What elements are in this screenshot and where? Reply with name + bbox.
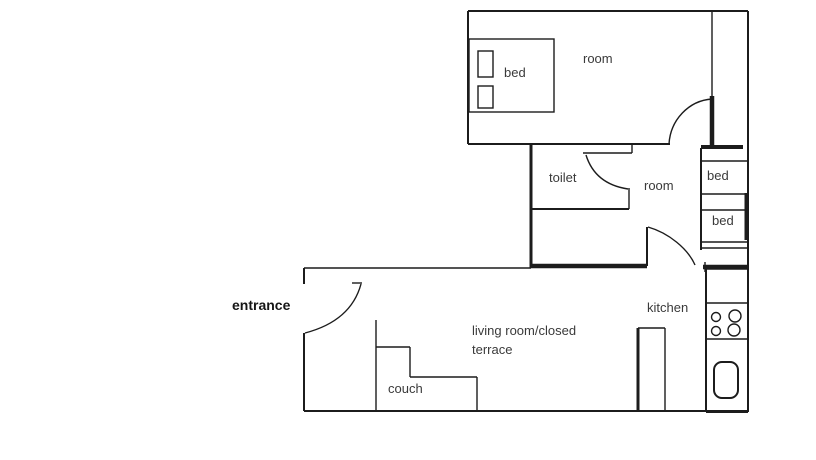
pillow-icon bbox=[478, 51, 493, 77]
top-room-door bbox=[669, 96, 712, 146]
stove-burner-icon bbox=[712, 327, 721, 336]
label-entrance: entrance bbox=[232, 298, 290, 313]
couch-outline bbox=[376, 320, 477, 410]
label-top-room: room bbox=[583, 51, 613, 66]
corridor-door bbox=[647, 227, 695, 266]
kitchen-counter bbox=[706, 269, 748, 412]
door-arc bbox=[669, 99, 712, 144]
stove-burner-icon bbox=[712, 313, 721, 322]
bed-closet bbox=[701, 145, 747, 250]
kitchen-island bbox=[638, 328, 665, 410]
sink-icon bbox=[714, 362, 738, 398]
closet-top-wall bbox=[701, 145, 743, 149]
stove-burner-icon bbox=[728, 324, 740, 336]
door-arc bbox=[305, 284, 361, 333]
stove-icon bbox=[712, 310, 742, 336]
pillow-icon bbox=[478, 86, 493, 108]
label-double-bed: bed bbox=[504, 65, 526, 80]
toilet-walls bbox=[531, 143, 629, 268]
label-toilet: toilet bbox=[549, 170, 576, 185]
label-closet-bed-upper: bed bbox=[707, 168, 729, 183]
label-couch: couch bbox=[388, 381, 423, 396]
toilet-door bbox=[583, 143, 632, 189]
entrance-door bbox=[305, 283, 362, 333]
corridor-walls bbox=[531, 262, 747, 272]
label-kitchen: kitchen bbox=[647, 300, 688, 315]
label-closet-bed-lower: bed bbox=[712, 213, 734, 228]
door-arc bbox=[586, 155, 628, 189]
label-middle-room: room bbox=[644, 178, 674, 193]
door-arc bbox=[648, 227, 695, 265]
label-living-room-line2: terrace bbox=[472, 342, 512, 357]
floorplan-canvas: bed room toilet room bed bed entrance ki… bbox=[0, 0, 816, 460]
stove-burner-icon bbox=[729, 310, 741, 322]
label-living-room: living room/closed terrace bbox=[472, 321, 576, 359]
label-living-room-line1: living room/closed bbox=[472, 323, 576, 338]
